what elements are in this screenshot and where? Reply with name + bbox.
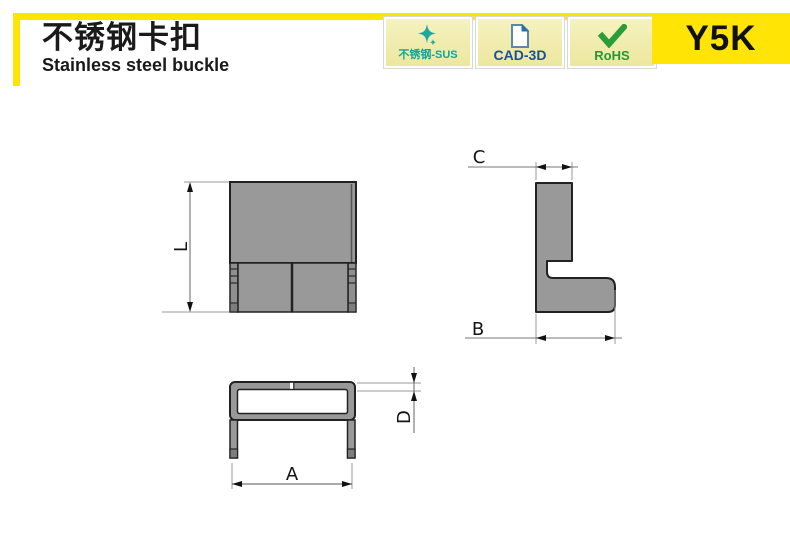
arrow-left [536, 164, 546, 170]
bottom-view [230, 382, 355, 458]
dimension-label-D: D [394, 410, 415, 424]
side-profile-view [536, 183, 615, 312]
arrow-up [187, 182, 193, 192]
arrow-down [187, 302, 193, 312]
front-right-strip-tip [349, 304, 356, 312]
dimension-label-A: A [286, 464, 299, 485]
dimension-label-C: C [473, 147, 486, 168]
arrow-left [232, 481, 242, 487]
front-view [230, 182, 356, 312]
front-top-plate [230, 182, 356, 263]
dimension-L: L [162, 182, 229, 312]
front-right-panel [293, 263, 349, 312]
dimension-C: C [468, 147, 578, 180]
dimension-D: D [357, 367, 421, 433]
arrow-right [342, 481, 352, 487]
arrow-down [411, 373, 417, 383]
dimension-label-L: L [171, 242, 192, 252]
arrow-up [411, 391, 417, 401]
dimension-A: A [232, 463, 352, 489]
side-profile-body [536, 183, 615, 312]
bottom-left-foot [230, 449, 238, 458]
arrow-right [605, 335, 615, 341]
dimension-label-B: B [472, 319, 484, 340]
technical-drawing: L C B A [0, 0, 790, 544]
front-left-strip-tip [231, 304, 238, 312]
bottom-right-foot [348, 449, 356, 458]
bottom-frame-split-gap [290, 383, 294, 389]
bottom-frame-opening [238, 390, 348, 414]
arrow-left [536, 335, 546, 341]
arrow-right [562, 164, 572, 170]
front-left-panel [238, 263, 292, 312]
